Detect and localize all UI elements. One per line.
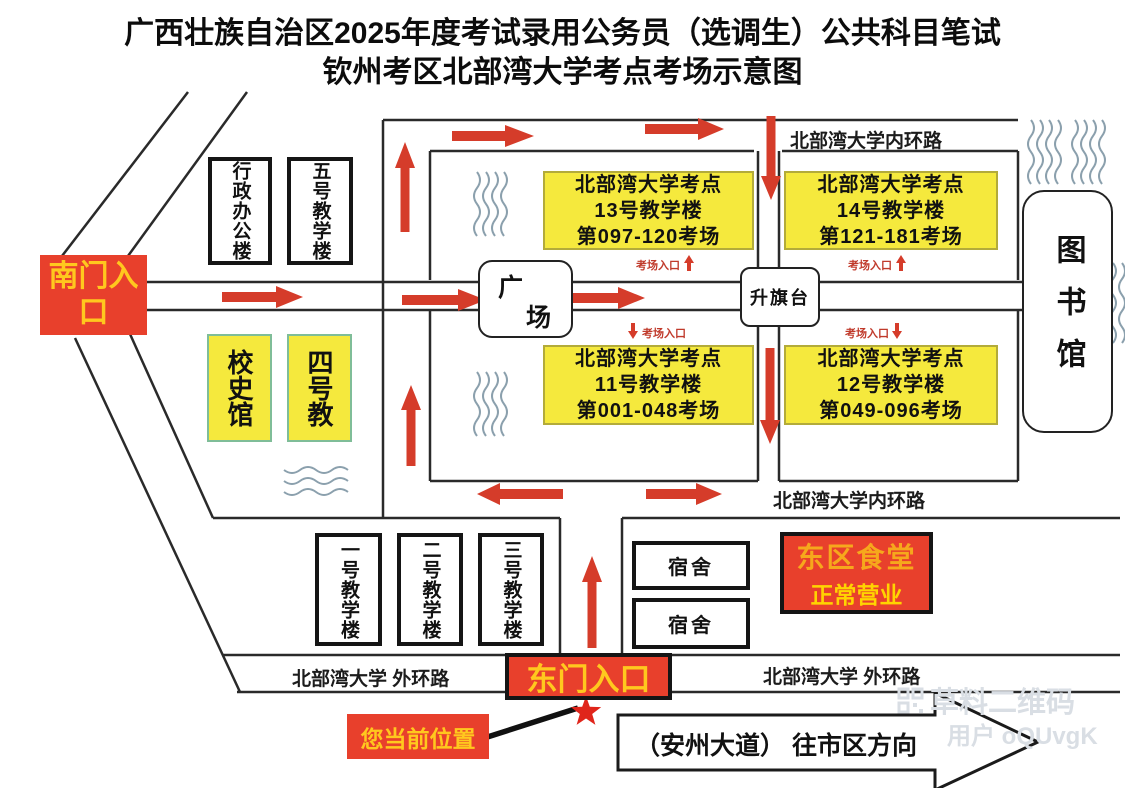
exam-site-label: 北部湾大学考点 [818,172,965,198]
plaza-label-char1: 广 [498,268,523,304]
exam-building-label: 12号教学楼 [837,372,945,398]
page-title-line2: 钦州考区北部湾大学考点考场示意图 [0,47,1125,91]
plaza-label-char2: 场 [526,298,551,334]
arrow-right-icon [402,289,486,311]
road-label-inner-ring-top: 北部湾大学内环路 [790,126,942,153]
exam-gate-label: 考场入口 [636,257,680,273]
page-title-line1: 广西壮族自治区2025年度考试录用公务员（选调生）公共科目笔试 [0,8,1125,52]
exam-building-12: 北部湾大学考点 12号教学楼 第049-096考场 [784,345,998,425]
exam-rooms-label: 第121-181考场 [819,224,962,250]
arrow-up-icon [401,385,421,466]
star-marker-icon [571,696,601,725]
current-location-label: 您当前位置 [361,720,476,754]
arrow-right-icon [646,483,722,505]
south-entrance-sign: 南门入口 [40,255,147,335]
exam-rooms-label: 第001-048考场 [577,398,720,424]
building-teach-5: 五号教学楼 [287,157,353,265]
library: 图书馆 [1022,190,1113,433]
building-label: 一号教学楼 [335,540,362,640]
building-teach-4: 四号教 [287,334,352,442]
arrow-right-icon [645,118,724,140]
arrow-up-icon [395,142,415,232]
canteen-status-label: 正常营业 [811,576,903,610]
dorm-label: 宿舍 [668,551,714,580]
waves-top-block [474,172,507,236]
exam-gate-label: 考场入口 [848,257,892,273]
waves-left-horizontal [284,467,348,495]
small-arrow-up-icon [684,255,694,271]
arrow-up-icon [582,556,602,648]
waves-top-right [1028,120,1105,184]
exam-building-13: 北部湾大学考点 13号教学楼 第097-120考场 [543,171,754,250]
road-label-inner-ring-bottom: 北部湾大学内环路 [773,486,925,513]
building-teach-2: 二号教学楼 [397,533,463,646]
exam-building-label: 13号教学楼 [594,198,702,224]
canteen-name-label: 东区食堂 [796,536,916,576]
arrow-down-icon [760,348,780,444]
qr-code-icon [897,687,924,714]
east-entrance-sign: 东门入口 [505,653,672,700]
exam-building-label: 14号教学楼 [837,198,945,224]
arrow-right-icon [222,286,303,308]
exam-building-label: 11号教学楼 [595,372,702,398]
dormitory-1: 宿舍 [632,541,750,590]
watermark-user: 用户 oQUvgK [947,716,1098,751]
flag-stand-label: 升旗台 [750,284,810,310]
arrow-left-icon [477,483,563,505]
east-canteen-sign: 东区食堂 正常营业 [780,532,933,614]
building-label: 五号教学楼 [307,161,334,261]
east-entrance-label: 东门入口 [527,654,651,699]
exam-gate-label: 考场入口 [845,325,889,341]
road-label-outer-ring-left: 北部湾大学 外环路 [292,664,449,691]
building-teach-3: 三号教学楼 [478,533,544,646]
exam-gate-label: 考场入口 [642,325,686,341]
waves-bottom-block [474,372,507,436]
building-label: 三号教学楼 [498,540,525,640]
watermark-brand: 草料二维码 [897,679,1075,721]
building-label: 二号教学楼 [417,540,444,640]
small-arrow-down-icon [628,323,638,339]
exam-venue-map: 广西壮族自治区2025年度考试录用公务员（选调生）公共科目笔试 钦州考区北部湾大… [0,0,1125,788]
building-label: 校史馆 [221,349,258,427]
exam-building-11: 北部湾大学考点 11号教学楼 第001-048考场 [543,345,754,425]
exam-site-label: 北部湾大学考点 [818,346,965,372]
exam-building-14: 北部湾大学考点 14号教学楼 第121-181考场 [784,171,998,250]
plaza: 广 场 [478,260,573,338]
building-label: 四号教 [301,349,338,427]
library-label: 图书馆 [1046,234,1090,390]
exam-site-label: 北部湾大学考点 [575,172,722,198]
flag-raising-stand: 升旗台 [740,267,820,327]
dorm-label: 宿舍 [668,609,714,638]
exam-rooms-label: 第049-096考场 [819,398,962,424]
exam-rooms-label: 第097-120考场 [577,224,720,250]
arrow-right-icon [452,125,534,147]
building-history-hall: 校史馆 [207,334,272,442]
dormitory-2: 宿舍 [632,598,750,649]
building-teach-1: 一号教学楼 [315,533,382,646]
exam-site-label: 北部湾大学考点 [575,346,722,372]
avenue-direction-label: （安州大道） 往市区方向 [622,726,930,762]
small-arrow-down-icon [892,323,902,339]
location-pointer-line [478,708,578,740]
south-entrance-label: 南门入口 [40,259,147,331]
current-location-sign: 您当前位置 [347,714,489,759]
watermark-brand-text: 草料二维码 [930,679,1075,721]
building-admin-office: 行政办公楼 [208,157,272,265]
building-label: 行政办公楼 [227,161,254,261]
small-arrow-up-icon [896,255,906,271]
